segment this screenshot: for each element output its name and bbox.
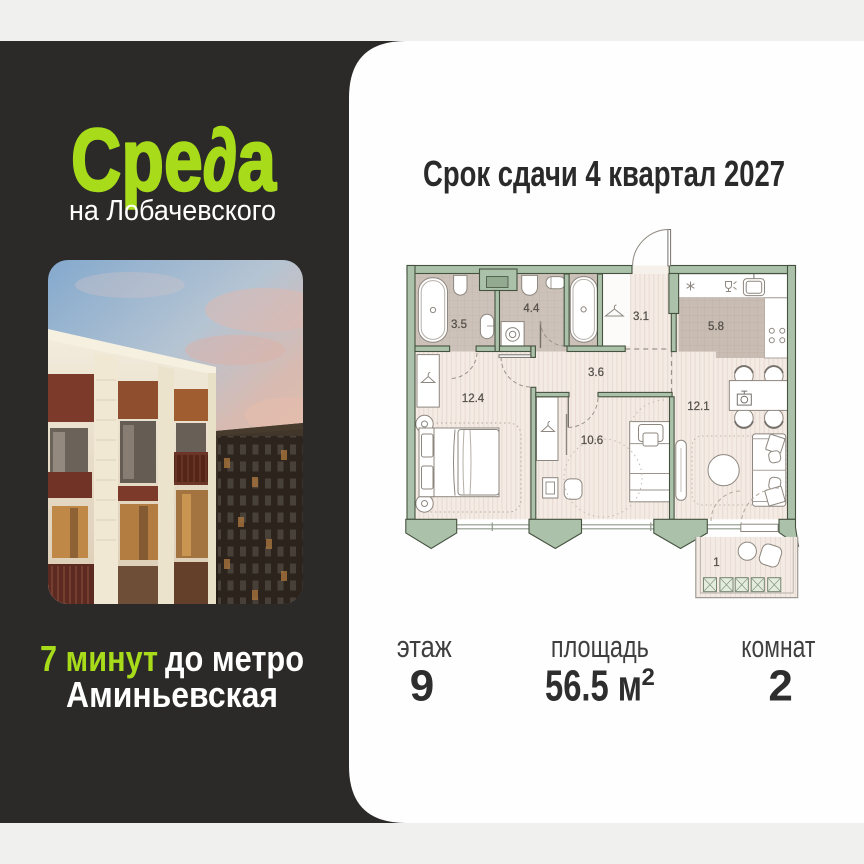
svg-text:2: 2 — [768, 662, 792, 711]
svg-text:5.8: 5.8 — [708, 321, 724, 333]
svg-text:1: 1 — [713, 557, 719, 569]
svg-text:на Лобачевского: на Лобачевского — [69, 195, 276, 227]
svg-text:3.6: 3.6 — [588, 367, 604, 379]
svg-text:10.6: 10.6 — [581, 435, 603, 447]
svg-text:4.4: 4.4 — [523, 303, 540, 315]
svg-text:7 минут: 7 минут — [40, 638, 158, 679]
svg-text:12.4: 12.4 — [462, 393, 485, 405]
svg-text:56.5 м: 56.5 м — [545, 662, 642, 711]
svg-text:Срок сдачи 4 квартал 2027: Срок сдачи 4 квартал 2027 — [423, 153, 785, 194]
svg-text:до метро: до метро — [165, 638, 304, 679]
svg-text:2: 2 — [642, 664, 655, 691]
svg-text:12.1: 12.1 — [687, 401, 709, 413]
svg-text:Аминьевская: Аминьевская — [66, 674, 278, 715]
svg-text:комнат: комнат — [741, 629, 815, 664]
svg-text:3.5: 3.5 — [451, 319, 467, 331]
svg-text:этаж: этаж — [397, 629, 452, 664]
svg-text:3.1: 3.1 — [633, 311, 649, 323]
svg-text:9: 9 — [410, 662, 434, 711]
svg-text:площадь: площадь — [551, 629, 649, 664]
